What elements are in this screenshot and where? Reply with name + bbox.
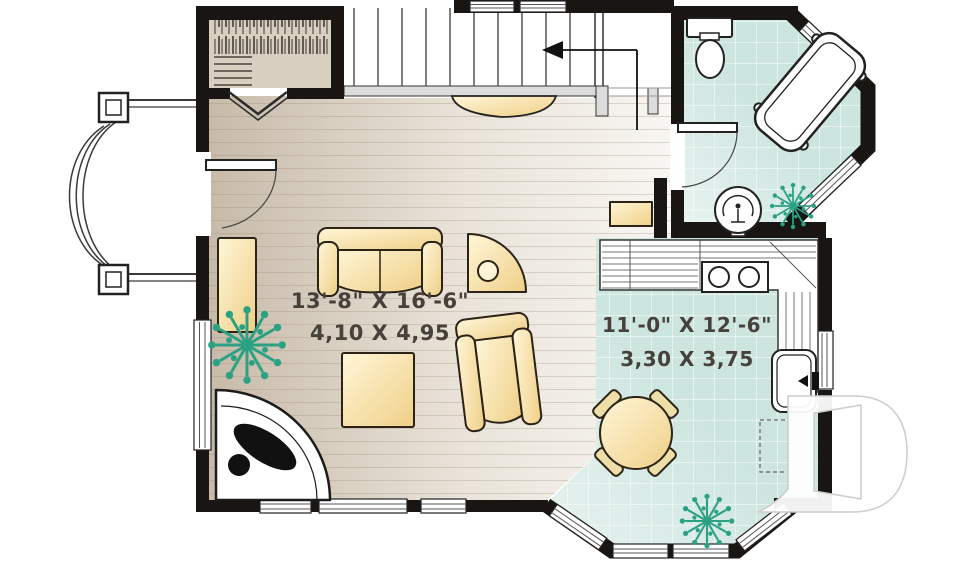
window-top-2 <box>520 1 566 12</box>
porch-curved-railing <box>70 126 105 266</box>
wall <box>196 6 344 20</box>
burner <box>709 267 729 287</box>
fire-log <box>228 454 250 476</box>
dining-furniture <box>591 388 679 477</box>
dining-table <box>600 397 672 469</box>
living-room-dimensions-metric: 4,10 X 4,95 <box>310 321 450 345</box>
wall <box>331 6 344 99</box>
porch <box>70 93 198 294</box>
stair-newel <box>596 86 608 116</box>
hall-step-edge <box>648 88 658 114</box>
porch-curved-railing <box>76 124 110 268</box>
window-bottom-3 <box>421 499 466 513</box>
window-dining-bay-bottom-2 <box>673 544 729 558</box>
stairwell-floor <box>344 4 608 98</box>
kitchen-dimensions-imperial: 11'-0" X 12'-6" <box>602 313 772 337</box>
wall <box>196 228 209 322</box>
porch-curved-railing <box>83 122 116 270</box>
closet-hanging-clothes <box>214 18 330 54</box>
window-bottom-2 <box>319 499 407 513</box>
table-lamp <box>478 261 498 281</box>
floor-plan: 13'-8" X 16'-6" 4,10 X 4,95 11'-0" X 12'… <box>0 0 960 569</box>
stove <box>702 262 768 292</box>
bookcase <box>218 238 256 332</box>
wall <box>196 88 230 99</box>
wall <box>466 500 548 512</box>
window-top-1 <box>470 1 514 12</box>
porch-post-inner <box>106 272 121 287</box>
window-dining-bay-bottom-1 <box>613 544 668 558</box>
window-left <box>194 320 211 450</box>
console-shelf <box>610 202 652 226</box>
wall-mullion <box>407 500 421 512</box>
living-room-dimensions-imperial: 13'-8" X 16'-6" <box>291 289 469 313</box>
sofa <box>318 228 442 296</box>
floor-plan-svg: 13'-8" X 16'-6" 4,10 X 4,95 11'-0" X 12'… <box>0 0 960 569</box>
coffee-table <box>342 353 414 427</box>
wall <box>818 238 832 333</box>
wall <box>196 6 209 158</box>
wall-mullion <box>311 500 319 512</box>
porch-post-inner <box>106 100 121 115</box>
wall <box>196 500 260 512</box>
stair-landing-edge <box>344 86 596 96</box>
wall <box>671 6 684 126</box>
wall <box>287 88 344 99</box>
burner <box>739 267 759 287</box>
kitchen-dimensions-metric: 3,30 X 3,75 <box>620 347 754 371</box>
armchair <box>453 312 542 432</box>
wall-stub-kitchen <box>654 178 667 238</box>
